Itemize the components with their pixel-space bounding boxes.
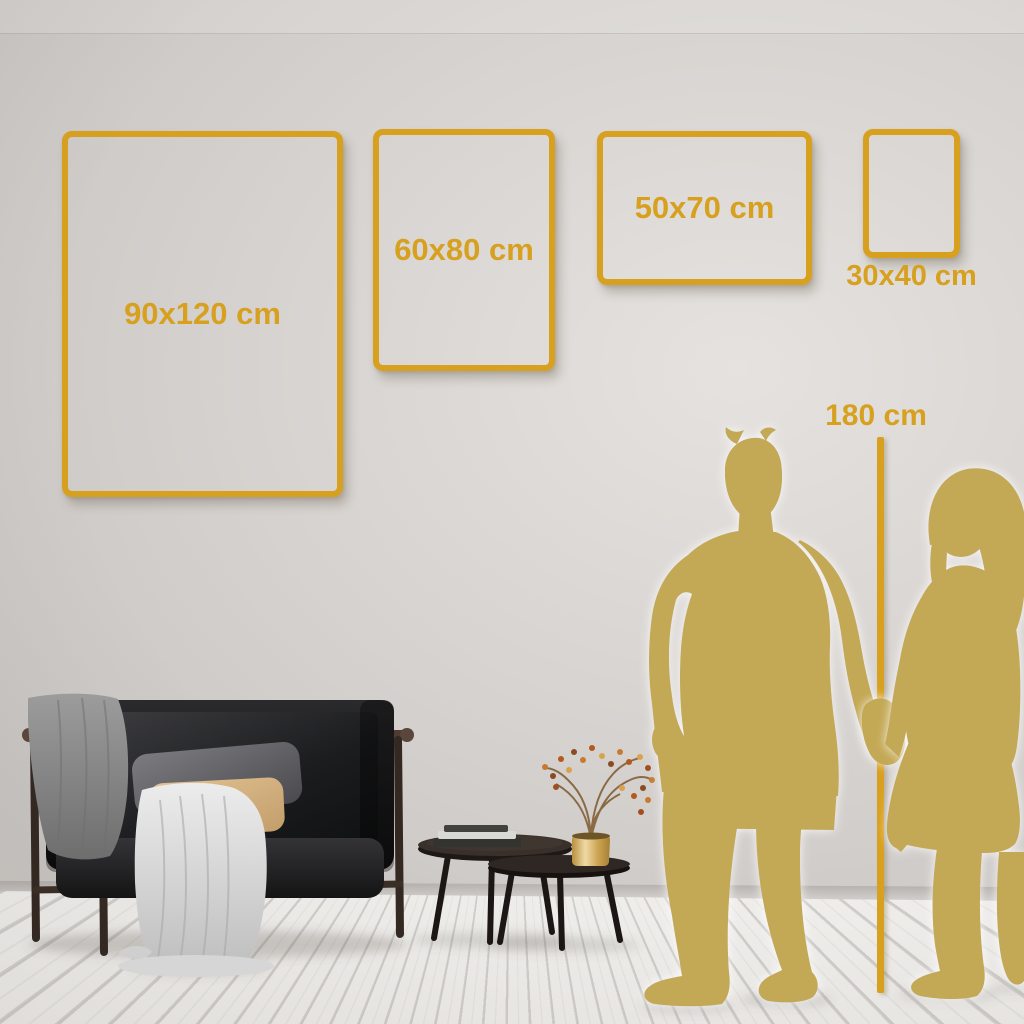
coffee-table-small bbox=[488, 855, 630, 873]
woman-skirt bbox=[887, 742, 1020, 853]
size-guide-scene: 90x120 cm 60x80 cm 50x70 cm 30x40 cm 180… bbox=[0, 0, 1024, 1024]
vase bbox=[572, 833, 610, 867]
size-label-50x70: 50x70 cm bbox=[635, 190, 775, 226]
height-ruler-line bbox=[877, 437, 884, 993]
sofa-body bbox=[46, 700, 394, 870]
size-frame-60x80: 60x80 cm bbox=[373, 129, 555, 371]
book-stack bbox=[433, 825, 521, 847]
coffee-table-large bbox=[418, 834, 572, 856]
sofa-wood-rail bbox=[26, 730, 410, 740]
woman-torso bbox=[904, 565, 1012, 750]
gray-blanket bbox=[28, 694, 128, 860]
size-frame-90x120: 90x120 cm bbox=[62, 131, 343, 497]
branch-berries bbox=[542, 745, 655, 815]
wall-upper-band bbox=[0, 0, 1024, 33]
size-label-60x80: 60x80 cm bbox=[394, 232, 534, 268]
size-label-30x40: 30x40 cm bbox=[846, 260, 977, 293]
man-torso bbox=[649, 530, 839, 796]
decorative-branch bbox=[542, 745, 655, 836]
height-marker-label: 180 cm bbox=[776, 399, 976, 433]
size-frame-50x70: 50x70 cm bbox=[597, 131, 812, 285]
pillow-dark-gray bbox=[131, 741, 304, 817]
woman-hair bbox=[928, 468, 1024, 645]
size-label-90x120: 90x120 cm bbox=[124, 296, 281, 332]
man-head bbox=[725, 438, 782, 520]
woman-far-arm bbox=[999, 592, 1020, 768]
size-frame-30x40: 30x40 cm bbox=[863, 129, 960, 258]
pillow-beige bbox=[149, 777, 286, 838]
woman-reaching-arm bbox=[885, 598, 933, 757]
wall-seam-line bbox=[0, 33, 1024, 34]
woman-head bbox=[930, 479, 992, 557]
